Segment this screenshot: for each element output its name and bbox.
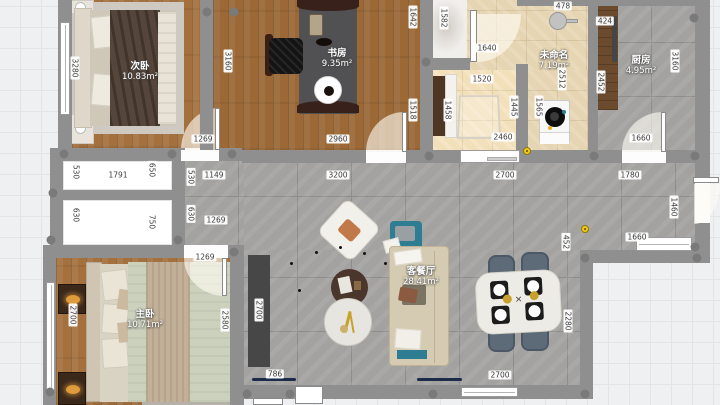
room-label-bedroom1: 主卧 10.71m² bbox=[127, 306, 163, 330]
dimension-label: 1518 bbox=[409, 98, 418, 121]
dimension-label: 630 bbox=[187, 205, 196, 223]
dimension-label: 1460 bbox=[670, 195, 679, 218]
table-decor bbox=[340, 325, 348, 333]
table-decor bbox=[337, 276, 352, 294]
pillow-accent bbox=[337, 218, 362, 243]
table-decor bbox=[529, 291, 538, 300]
wall-joint-handle[interactable] bbox=[230, 8, 239, 17]
wall-joint-handle[interactable] bbox=[49, 189, 58, 198]
door-leaf[interactable] bbox=[402, 112, 407, 152]
desk-chair[interactable] bbox=[269, 38, 303, 74]
wall[interactable] bbox=[420, 0, 433, 152]
room-label-bedroom2: 次卧 10.83m² bbox=[122, 58, 158, 82]
desk-end bbox=[297, 0, 359, 11]
lamp-icon bbox=[66, 385, 80, 394]
cup-inner bbox=[324, 86, 334, 96]
dimension-label: 1445 bbox=[510, 95, 519, 118]
dimension-label: 452 bbox=[562, 233, 571, 251]
window[interactable] bbox=[46, 282, 55, 392]
decor-dot bbox=[339, 246, 342, 249]
door-leaf[interactable] bbox=[215, 108, 220, 150]
decor-dot bbox=[290, 262, 293, 265]
point-marker-handle[interactable] bbox=[581, 225, 589, 233]
wall[interactable] bbox=[230, 250, 244, 405]
room-name: 客餐厅 bbox=[403, 263, 439, 277]
dimension-label: 2460 bbox=[491, 133, 514, 142]
dimension-label: 1660 bbox=[629, 134, 652, 143]
door-opening bbox=[366, 152, 406, 163]
sink-icon[interactable] bbox=[549, 12, 567, 30]
dimension-label: 2700 bbox=[488, 371, 511, 380]
wall[interactable] bbox=[517, 0, 695, 6]
dimension-label: 3200 bbox=[326, 171, 349, 180]
room-label-study: 书房 9.35m² bbox=[322, 45, 353, 69]
place-setting bbox=[525, 302, 544, 321]
blanket bbox=[394, 328, 421, 350]
washer-base bbox=[540, 132, 569, 144]
pillow bbox=[398, 287, 418, 304]
wall[interactable] bbox=[433, 150, 461, 163]
door-leaf[interactable] bbox=[693, 177, 719, 183]
wall-joint-handle[interactable] bbox=[422, 58, 431, 67]
duvet-fold bbox=[158, 12, 176, 124]
dimension-label: 1780 bbox=[618, 171, 641, 180]
washer-dot bbox=[548, 126, 552, 130]
wall-joint-handle[interactable] bbox=[581, 390, 590, 399]
dimension-label: 2700 bbox=[493, 171, 516, 180]
table-decor bbox=[354, 281, 361, 290]
sliding-window[interactable] bbox=[460, 150, 520, 163]
dining-table[interactable]: × bbox=[474, 269, 562, 335]
wall-joint-handle[interactable] bbox=[690, 14, 699, 23]
room-area: 28.41m² bbox=[403, 277, 439, 287]
dimension-label: 2280 bbox=[564, 309, 573, 332]
dimension-label: 630 bbox=[72, 206, 81, 224]
wall-joint-handle[interactable] bbox=[691, 243, 700, 252]
dimension-label: 478 bbox=[554, 2, 572, 11]
wall[interactable] bbox=[580, 250, 593, 399]
window[interactable] bbox=[461, 387, 518, 397]
wall-joint-handle[interactable] bbox=[230, 248, 239, 257]
tablet[interactable] bbox=[309, 14, 323, 36]
washer-door bbox=[550, 112, 559, 121]
wall-joint-handle[interactable] bbox=[203, 8, 212, 17]
room-label-living-dining: 客餐厅 28.41m² bbox=[403, 263, 439, 287]
room-label-kitchen: 厨房 4.95m² bbox=[626, 52, 657, 76]
room-name: 主卧 bbox=[127, 306, 163, 320]
wall[interactable] bbox=[242, 150, 366, 163]
room-area: 4.95m² bbox=[626, 66, 657, 76]
room-name: 厨房 bbox=[626, 52, 657, 66]
pillow-accent bbox=[397, 350, 427, 359]
dimension-label: 3160 bbox=[224, 49, 233, 72]
dimension-label: 2580 bbox=[221, 308, 230, 331]
dimension-label: 424 bbox=[596, 17, 614, 26]
dimension-label: 1269 bbox=[193, 253, 216, 262]
dimension-label: 750 bbox=[148, 213, 157, 231]
wall[interactable] bbox=[53, 148, 181, 161]
dimension-label: 2960 bbox=[326, 135, 349, 144]
dimension-label: 530 bbox=[187, 168, 196, 186]
room-name: 未命名 bbox=[539, 47, 570, 61]
dimension-label: 1582 bbox=[440, 6, 449, 29]
table-decor: × bbox=[515, 295, 526, 306]
bed-runner bbox=[146, 262, 190, 402]
wall-joint-handle[interactable] bbox=[168, 150, 177, 159]
dimension-label: 1149 bbox=[202, 171, 225, 180]
wall[interactable] bbox=[580, 250, 710, 263]
wall[interactable] bbox=[43, 245, 184, 258]
room-name: 次卧 bbox=[122, 58, 158, 72]
dimension-label: 1640 bbox=[475, 44, 498, 53]
wall-joint-handle[interactable] bbox=[174, 236, 183, 245]
dimension-label: 1660 bbox=[625, 233, 648, 242]
wall-joint-handle[interactable] bbox=[581, 254, 590, 263]
dimension-label: 530 bbox=[72, 163, 81, 181]
coffee-table[interactable] bbox=[324, 298, 372, 346]
dimension-label: 786 bbox=[266, 370, 284, 379]
washing-machine-icon[interactable] bbox=[539, 100, 570, 144]
dimension-label: 2452 bbox=[597, 70, 606, 93]
balcony-sill bbox=[253, 398, 283, 405]
place-setting bbox=[491, 305, 510, 324]
wall[interactable] bbox=[50, 190, 173, 200]
dimension-label: 1269 bbox=[191, 135, 214, 144]
wall-joint-handle[interactable] bbox=[46, 388, 55, 397]
dimension-label: 1520 bbox=[470, 75, 493, 84]
wall-joint-handle[interactable] bbox=[691, 152, 700, 161]
decor-dot bbox=[384, 262, 387, 265]
room-area: 10.71m² bbox=[127, 320, 163, 330]
decor-dot bbox=[315, 251, 318, 254]
door-leaf[interactable] bbox=[222, 258, 227, 296]
wall-joint-handle[interactable] bbox=[243, 390, 252, 399]
wall-joint-handle[interactable] bbox=[286, 390, 295, 399]
room-area: 9.35m² bbox=[322, 59, 353, 69]
door-leaf[interactable] bbox=[470, 10, 477, 62]
dimension-label: 1565 bbox=[535, 95, 544, 118]
door-swing-arc bbox=[694, 184, 720, 224]
dimension-label: 1269 bbox=[204, 216, 227, 225]
dimension-label: 1642 bbox=[409, 5, 418, 28]
wall-joint-handle[interactable] bbox=[47, 236, 56, 245]
wall-joint-handle[interactable] bbox=[429, 390, 438, 399]
faucet-icon bbox=[566, 19, 578, 23]
floor-plan: × 次卧 bbox=[0, 0, 720, 405]
decor-dot bbox=[363, 252, 366, 255]
balcony-door[interactable] bbox=[295, 386, 323, 404]
dimension-label: 1791 bbox=[106, 171, 129, 180]
point-marker-handle[interactable] bbox=[523, 147, 531, 155]
table-decor bbox=[349, 313, 354, 333]
washer-dot bbox=[562, 110, 566, 114]
decor-dot bbox=[298, 289, 301, 292]
dimension-label: 2700 bbox=[69, 303, 78, 326]
wall-joint-handle[interactable] bbox=[693, 254, 702, 263]
window[interactable] bbox=[60, 22, 70, 115]
curtain[interactable] bbox=[417, 378, 462, 381]
dimension-label: 2700 bbox=[255, 298, 264, 321]
door-opening bbox=[622, 152, 666, 163]
dimension-label: 650 bbox=[148, 161, 157, 179]
wall-joint-handle[interactable] bbox=[425, 152, 434, 161]
door-leaf[interactable] bbox=[661, 112, 666, 152]
dimension-label: 3160 bbox=[671, 49, 680, 72]
table-decor bbox=[503, 294, 512, 303]
room-name: 书房 bbox=[322, 45, 353, 59]
dimension-label: 3280 bbox=[71, 56, 80, 79]
door-opening bbox=[181, 150, 219, 161]
dimension-label: 1458 bbox=[444, 98, 453, 121]
wall-joint-handle[interactable] bbox=[60, 150, 69, 159]
wall-joint-handle[interactable] bbox=[590, 152, 599, 161]
wall[interactable] bbox=[200, 0, 213, 150]
wall-joint-handle[interactable] bbox=[228, 150, 237, 159]
nightstand[interactable] bbox=[58, 372, 86, 405]
dimension-label: 2512 bbox=[558, 67, 567, 90]
cup[interactable] bbox=[314, 76, 342, 104]
wall[interactable] bbox=[598, 150, 622, 163]
room-area: 10.83m² bbox=[122, 72, 158, 82]
